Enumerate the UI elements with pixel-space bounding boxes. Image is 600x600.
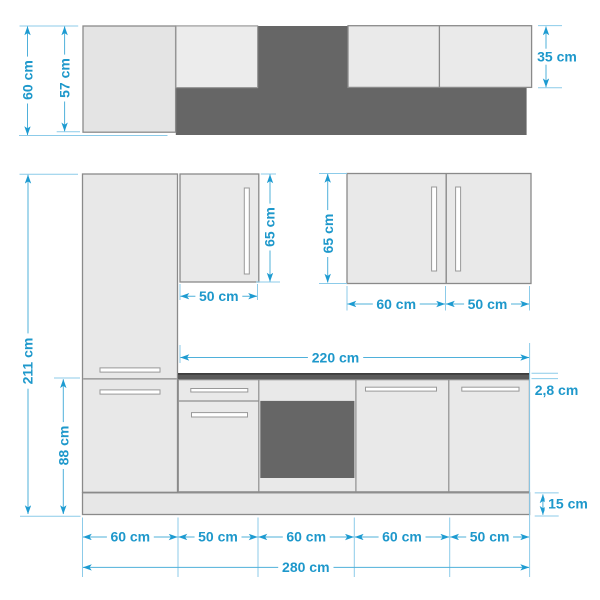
svg-text:88 cm: 88 cm bbox=[55, 426, 71, 466]
svg-text:60 cm: 60 cm bbox=[376, 296, 416, 312]
svg-text:280 cm: 280 cm bbox=[282, 559, 329, 575]
svg-text:2,8 cm: 2,8 cm bbox=[535, 382, 579, 398]
svg-text:220 cm: 220 cm bbox=[312, 350, 359, 366]
svg-text:15 cm: 15 cm bbox=[548, 495, 588, 511]
svg-text:57 cm: 57 cm bbox=[57, 58, 73, 98]
svg-text:60 cm: 60 cm bbox=[286, 529, 326, 545]
svg-text:60 cm: 60 cm bbox=[382, 529, 422, 545]
svg-text:211 cm: 211 cm bbox=[20, 338, 36, 385]
svg-text:65 cm: 65 cm bbox=[262, 207, 278, 247]
svg-text:60 cm: 60 cm bbox=[20, 60, 36, 100]
svg-text:50 cm: 50 cm bbox=[198, 529, 238, 545]
svg-text:35 cm: 35 cm bbox=[537, 49, 577, 65]
svg-text:50 cm: 50 cm bbox=[470, 529, 510, 545]
svg-text:50 cm: 50 cm bbox=[468, 296, 508, 312]
svg-text:65 cm: 65 cm bbox=[320, 214, 336, 254]
svg-text:60 cm: 60 cm bbox=[110, 529, 150, 545]
svg-text:50 cm: 50 cm bbox=[199, 288, 239, 304]
